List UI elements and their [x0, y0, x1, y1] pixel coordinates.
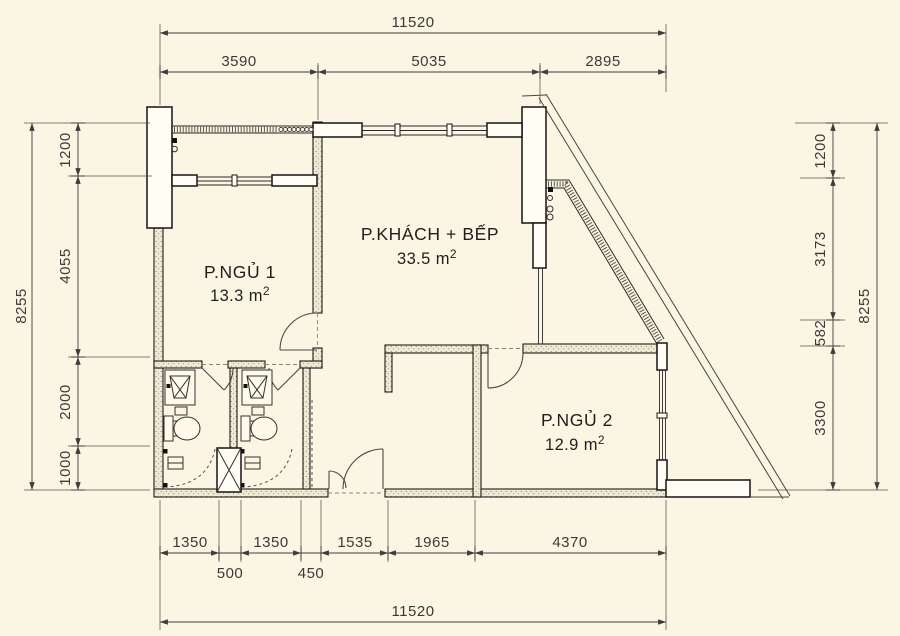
room-label-living-kitchen: P.KHÁCH + BẾP — [361, 223, 499, 244]
toilet-bowl — [174, 417, 200, 440]
dim-left-1: 1200 — [57, 132, 74, 167]
dim-top-total: 11520 — [391, 14, 434, 31]
dim-right-1: 1200 — [812, 133, 829, 168]
column-left — [147, 107, 172, 228]
toilet-bowl — [251, 417, 277, 440]
dim-bottom-sub-500: 500 — [217, 565, 244, 582]
dim-bottom-2: 1350 — [253, 534, 288, 551]
wall-bedroom1-right — [313, 122, 322, 313]
window-jamb-bed1-left — [172, 175, 197, 186]
toilet-tank — [164, 416, 173, 441]
dim-bottom-4: 1965 — [414, 534, 449, 551]
dim-bottom-3: 1535 — [337, 534, 372, 551]
window-jamb-bed1-right — [272, 175, 317, 186]
dim-bottom-1: 1350 — [172, 534, 207, 551]
room-area-living-kitchen: 33.5 m2 — [397, 247, 457, 268]
dim-top-3: 2895 — [585, 53, 620, 70]
dim-right-3: 582 — [812, 320, 829, 347]
background — [0, 0, 900, 636]
column-right — [522, 107, 546, 223]
dim-top-1: 3590 — [221, 53, 256, 70]
window-jamb-bed2-top — [657, 343, 667, 370]
wall-nook-left — [385, 353, 392, 392]
dim-left-total: 8255 — [13, 288, 30, 323]
room-area-bedroom2: 12.9 m2 — [545, 433, 605, 454]
faucet-icon — [167, 384, 171, 388]
neighbor-wall-stub — [666, 480, 750, 497]
wall-bath2-right — [303, 368, 310, 489]
wall-bath-top-a — [154, 361, 202, 368]
wall-left — [154, 228, 163, 490]
window-jamb-living-left — [313, 123, 362, 137]
floor-plan-canvas: P.NGỦ 1 13.3 m2 P.KHÁCH + BẾP 33.5 m2 P.… — [0, 0, 900, 636]
wall-bedroom2-top — [523, 344, 657, 353]
wall-bath-top-c — [300, 361, 322, 368]
faucet-icon — [244, 384, 248, 388]
room-label-bedroom2: P.NGỦ 2 — [541, 409, 613, 430]
window-jamb-living-right — [487, 123, 522, 137]
wall-bottom-right — [385, 489, 667, 497]
dim-left-4: 1000 — [57, 450, 74, 485]
dim-top-2: 5035 — [411, 53, 446, 70]
dim-left-3: 2000 — [57, 384, 74, 419]
room-label-bedroom1: P.NGỦ 1 — [204, 261, 276, 282]
dim-bottom-sub-450: 450 — [298, 565, 325, 582]
dim-right-total: 8255 — [856, 288, 873, 323]
dim-bottom-total: 11520 — [391, 603, 434, 620]
service-shaft — [217, 448, 241, 492]
toilet-tank — [241, 416, 250, 441]
column-right-extension — [533, 223, 546, 268]
wall-bedroom2-left — [473, 345, 481, 497]
dim-right-4: 3300 — [812, 400, 829, 435]
room-area-bedroom1: 13.3 m2 — [210, 284, 270, 305]
wall-bath-top-b — [228, 361, 265, 368]
dim-bottom-5: 4370 — [552, 534, 587, 551]
dim-right-2: 3173 — [812, 231, 829, 266]
dim-left-2: 4055 — [57, 248, 74, 283]
